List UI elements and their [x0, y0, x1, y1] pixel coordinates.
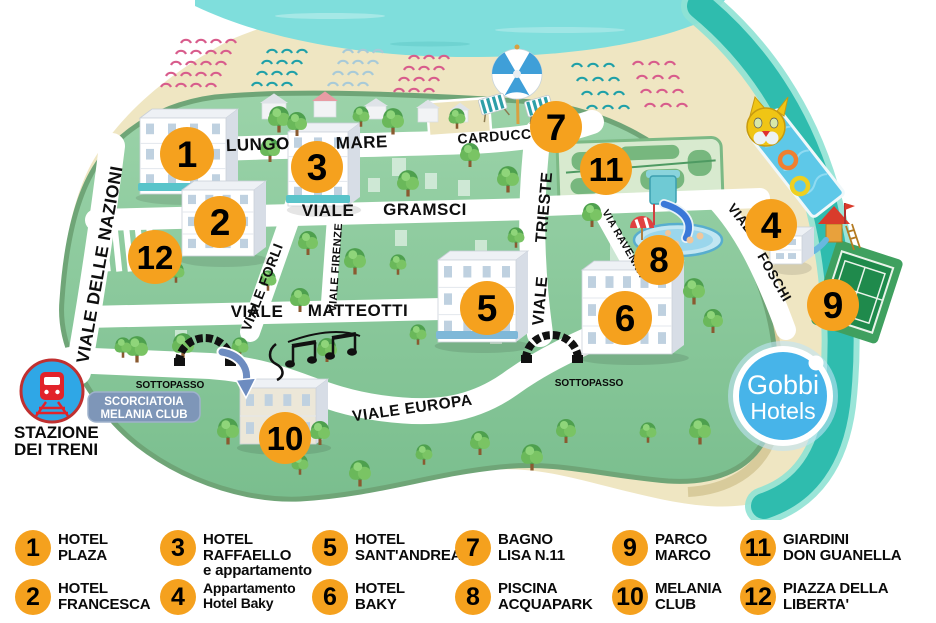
- scorciatoia-badge: SCORCIATOIA MELANIA CLUB: [88, 392, 200, 422]
- gobbi-hotels-logo[interactable]: Gobbi Hotels: [728, 341, 838, 451]
- tourist-map-page: SCORCIATOIA MELANIA CLUB STAZIONE DEI TR…: [0, 0, 936, 623]
- legend-item-12: 12 PIAZZA DELLALIBERTA': [740, 579, 888, 615]
- legend-label: MELANIA: [655, 581, 722, 597]
- legend-item-8: 8 PISCINAACQUAPARK: [455, 579, 593, 615]
- legend-label: HOTEL: [58, 581, 150, 597]
- legend-label: RAFFAELLO: [203, 548, 312, 564]
- legend-label: e appartamento: [203, 563, 312, 579]
- station-label: STAZIONE DEI TRENI: [14, 423, 99, 459]
- marker-number: 11: [589, 151, 624, 188]
- gobbi-logo-line1: Gobbi: [747, 370, 819, 400]
- sottopasso-right-label: SOTTOPASSO: [555, 378, 624, 389]
- street-label-gramsci-1: VIALE: [302, 201, 355, 220]
- marker-number: 12: [137, 239, 174, 276]
- street-label-matteotti-2: MATTEOTTI: [308, 301, 409, 320]
- scorciatoia-label-line2: MELANIA CLUB: [100, 409, 187, 421]
- legend-label: Hotel Baky: [203, 596, 296, 611]
- sottopasso-left-label: SOTTOPASSO: [136, 380, 205, 391]
- map-canvas: SCORCIATOIA MELANIA CLUB STAZIONE DEI TR…: [0, 0, 936, 520]
- map-marker-12[interactable]: 12: [128, 230, 182, 284]
- legend-label: MARCO: [655, 548, 711, 564]
- legend-badge-11: 11: [740, 530, 776, 566]
- street-label-gramsci-2: GRAMSCI: [383, 200, 467, 219]
- legend-label: LISA N.11: [498, 548, 565, 564]
- legend-label: FRANCESCA: [58, 597, 150, 613]
- marker-number: 6: [615, 298, 636, 339]
- legend-label: PIAZZA DELLA: [783, 581, 888, 597]
- legend-badge-3: 3: [160, 530, 196, 566]
- legend-label: PISCINA: [498, 581, 593, 597]
- marker-number: 1: [177, 134, 198, 175]
- legend-badge-7: 7: [455, 530, 491, 566]
- legend-item-3: 3 HOTELRAFFAELLOe appartamento: [160, 530, 312, 579]
- marker-number: 9: [823, 285, 844, 326]
- marker-number: 8: [649, 241, 668, 280]
- legend-item-10: 10 MELANIACLUB: [612, 579, 722, 615]
- map-marker-3[interactable]: 3: [291, 141, 343, 193]
- map-marker-11[interactable]: 11: [580, 143, 632, 195]
- legend-label: DON GUANELLA: [783, 548, 901, 564]
- legend-badge-10: 10: [612, 579, 648, 615]
- marker-number: 2: [210, 202, 231, 243]
- station-label-line2: DEI TRENI: [14, 440, 98, 459]
- marker-number: 3: [307, 147, 328, 188]
- map-marker-1[interactable]: 1: [160, 127, 214, 181]
- legend-badge-5: 5: [312, 530, 348, 566]
- legend-label: BAKY: [355, 597, 405, 613]
- legend-item-9: 9 PARCOMARCO: [612, 530, 711, 566]
- marker-number: 5: [477, 288, 498, 329]
- legend-item-4: 4 AppartamentoHotel Baky: [160, 579, 296, 615]
- legend-label: CLUB: [655, 597, 722, 613]
- legend-badge-1: 1: [15, 530, 51, 566]
- legend-item-5: 5 HOTELSANT'ANDREA: [312, 530, 461, 566]
- legend-badge-12: 12: [740, 579, 776, 615]
- map-marker-10[interactable]: 10: [259, 412, 311, 464]
- umbrella-icon: [176, 51, 186, 54]
- street-label-mare: MARE: [335, 132, 388, 153]
- train-station-icon: [21, 360, 83, 422]
- legend-label: PLAZA: [58, 548, 108, 564]
- legend-item-11: 11 GIARDINIDON GUANELLA: [740, 530, 901, 566]
- map-marker-2[interactable]: 2: [194, 196, 246, 248]
- legend-label: GIARDINI: [783, 532, 901, 548]
- legend-label: HOTEL: [355, 581, 405, 597]
- legend-label: Appartamento: [203, 581, 296, 596]
- map-marker-8[interactable]: 8: [634, 235, 684, 285]
- umbrella-icon: [191, 51, 201, 54]
- marker-number: 4: [761, 205, 782, 246]
- legend-label: SANT'ANDREA: [355, 548, 461, 564]
- map-marker-7[interactable]: 7: [530, 101, 582, 153]
- legend-badge-6: 6: [312, 579, 348, 615]
- street-label-lungo: LUNGO: [226, 134, 291, 155]
- umbrella-icon: [181, 40, 191, 43]
- legend-label: BAGNO: [498, 532, 565, 548]
- legend-label: HOTEL: [58, 532, 108, 548]
- legend-badge-8: 8: [455, 579, 491, 615]
- legend-label: PARCO: [655, 532, 711, 548]
- legend-item-7: 7 BAGNOLISA N.11: [455, 530, 565, 566]
- map-marker-9[interactable]: 9: [807, 279, 859, 331]
- umbrella-icon: [171, 62, 181, 65]
- legend-item-2: 2 HOTELFRANCESCA: [15, 579, 150, 615]
- legend-label: LIBERTA': [783, 597, 888, 613]
- umbrella-icon: [211, 40, 221, 43]
- legend-badge-2: 2: [15, 579, 51, 615]
- legend-label: ACQUAPARK: [498, 597, 593, 613]
- legend-item-6: 6 HOTELBAKY: [312, 579, 405, 615]
- umbrella-icon: [196, 40, 206, 43]
- marker-number: 7: [546, 107, 567, 148]
- legend-label: HOTEL: [203, 532, 312, 548]
- umbrella-icon: [166, 73, 176, 76]
- legend-badge-4: 4: [160, 579, 196, 615]
- map-marker-4[interactable]: 4: [745, 199, 797, 251]
- legend-item-1: 1 HOTELPLAZA: [15, 530, 108, 566]
- gobbi-logo-line2: Hotels: [750, 398, 815, 424]
- map-marker-6[interactable]: 6: [598, 291, 652, 345]
- legend-label: HOTEL: [355, 532, 461, 548]
- map-marker-5[interactable]: 5: [460, 281, 514, 335]
- marker-number: 10: [267, 420, 304, 457]
- scorciatoia-label-line1: SCORCIATOIA: [104, 396, 183, 408]
- legend-badge-9: 9: [612, 530, 648, 566]
